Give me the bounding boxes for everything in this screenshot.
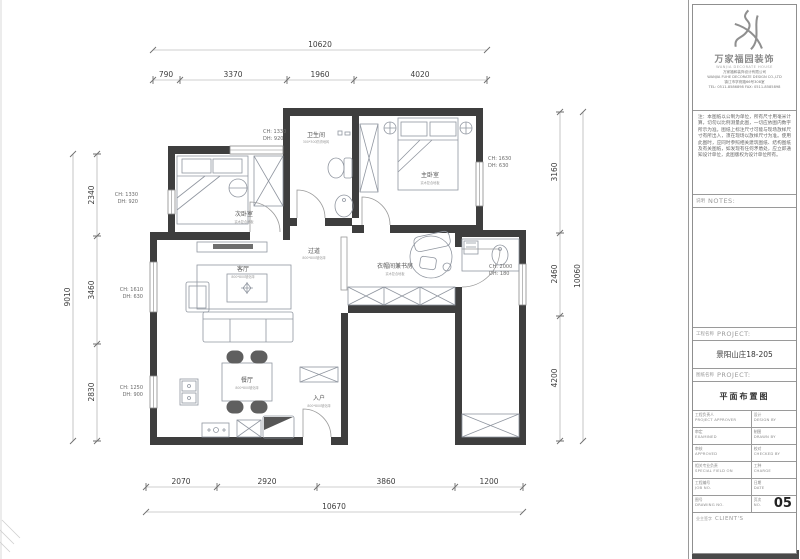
room-corridor: 过道 xyxy=(308,247,320,255)
dim-top-seg2: 1960 xyxy=(310,70,329,79)
titleblock: 万家福园装饰 WANJIA DECORATE HOUSE 万家福和装饰设计有限公… xyxy=(692,4,797,554)
appliance-shade xyxy=(264,417,293,430)
room-corridor-finish: 800*800玻化砖 xyxy=(302,255,326,260)
wintag-utility-ch: CH: 2000 xyxy=(489,264,512,270)
dim-bottom-seg1: 2920 xyxy=(257,477,276,486)
sheet-frame xyxy=(0,0,799,559)
client-signature-box xyxy=(693,525,796,553)
dim-bottom-total: 10670 xyxy=(322,502,346,511)
room-bathroom: 卫生间 xyxy=(307,131,325,139)
table-row: 审核APPROVED 校对CHECKED BY xyxy=(693,445,796,462)
tv xyxy=(213,244,253,249)
window-master-right xyxy=(476,162,483,206)
floor-plan-canvas: 10620 790 3370 1960 4020 10670 2070 2920… xyxy=(0,0,800,559)
room-master-finish: 实木复合地板 xyxy=(420,180,440,185)
room-study-finish: 实木复合地板 xyxy=(385,271,405,276)
notes-empty-box xyxy=(693,208,796,328)
notes-label-en: NOTES: xyxy=(708,197,735,205)
furniture-entry xyxy=(300,367,338,382)
dim-left-seg0: 2340 xyxy=(87,185,96,204)
furniture-bathroom xyxy=(328,131,353,217)
dim-bottom-seg2: 3860 xyxy=(376,477,395,486)
client-label-en: CLIENT'S xyxy=(715,516,743,522)
door-master xyxy=(362,197,390,225)
dim-bottom-seg3: 1200 xyxy=(479,477,498,486)
drawing-label-cn: 图纸名称 xyxy=(696,372,714,378)
drawing-header: 图纸名称 PROJECT: xyxy=(693,369,796,382)
project-label-en: PROJECT: xyxy=(717,330,751,338)
dim-left-total: 9010 xyxy=(63,287,72,306)
room-living: 客厅 xyxy=(237,265,249,273)
notes-label-cn: 说明 xyxy=(696,198,705,204)
project-header: 工程名称 PROJECT: xyxy=(693,328,796,341)
signature-table: 工程负责人PROJECT APPROVER 设计DESIGN BY 审定EXAM… xyxy=(693,411,796,513)
notes-header: 说明 NOTES: xyxy=(693,195,796,208)
corridor-partition xyxy=(341,237,347,290)
window-bedroom-top xyxy=(230,146,283,154)
table-row: 审定EXAMINED 制图DRAWN BY xyxy=(693,428,796,445)
wintag-bedleft-ch: CH: 1330 xyxy=(115,192,138,198)
door-bedroom xyxy=(250,202,280,232)
titleblock-outer-line xyxy=(688,0,689,559)
dim-top-seg3: 4020 xyxy=(410,70,429,79)
wintag-dining-ch: CH: 1250 xyxy=(120,385,143,391)
furniture-living xyxy=(186,242,293,342)
room-dining-finish: 800*800玻化砖 xyxy=(235,385,259,390)
table-row: 相关专业负责SPECIAL FIELD ON 工种CHARGE xyxy=(693,462,796,479)
furniture-master xyxy=(360,118,472,192)
door-bathroom xyxy=(297,190,325,218)
room-living-finish: 800*800玻化砖 xyxy=(231,274,255,279)
drawing-label-en: PROJECT: xyxy=(717,371,751,379)
door-entry xyxy=(303,409,331,437)
client-signature-row: 业主签字 CLIENT'S xyxy=(693,513,796,525)
drawing-sheet: 10620 790 3370 1960 4020 10670 2070 2920… xyxy=(0,0,800,559)
dim-right-total: 10060 xyxy=(573,264,582,288)
wintag-bedleft-dh: DH: 920 xyxy=(118,199,138,205)
dim-left-seg1: 3460 xyxy=(87,280,96,299)
dim-top-seg1: 3370 xyxy=(223,70,242,79)
titleblock-logo-box: 万家福园装饰 WANJIA DECORATE HOUSE 万家福和装饰设计有限公… xyxy=(693,5,796,111)
room-dining: 餐厅 xyxy=(241,376,253,384)
furniture-bedroom2 xyxy=(177,156,283,224)
project-label-cn: 工程名称 xyxy=(696,331,714,337)
client-label-cn: 业主签字 xyxy=(696,516,712,522)
wintag-dining-dh: DH: 900 xyxy=(123,392,143,398)
dim-bottom-seg0: 2070 xyxy=(171,477,190,486)
dim-left-seg2: 2830 xyxy=(87,382,96,401)
room-master: 主卧室 xyxy=(421,171,439,179)
brand-logo-glyph xyxy=(722,7,768,51)
company-line-4: TEL: 0511-8586898 FAX: 0511-8585898 xyxy=(693,85,796,90)
project-name-value: 景阳山庄18-205 xyxy=(693,341,796,369)
table-row: 工程编号JOB NO. 日期DATE xyxy=(693,479,796,496)
furniture-dining xyxy=(180,351,294,438)
wintag-master-dh: DH: 630 xyxy=(488,163,508,169)
wintag-living-ch: CH: 1610 xyxy=(120,287,143,293)
wintag-living-dh: DH: 630 xyxy=(123,294,143,300)
room-bedroom2-finish: 实木复合地板 xyxy=(234,219,254,224)
window-bedroom-left xyxy=(168,190,175,214)
dim-right-seg2: 4200 xyxy=(550,368,559,387)
room-bathroom-finish: 300*300防滑地砖 xyxy=(303,139,330,144)
room-entry: 入户 xyxy=(313,394,325,402)
room-labels: 次卧室 实木复合地板 卫生间 300*300防滑地砖 主卧室 实木复合地板 过道… xyxy=(231,131,440,408)
room-entry-finish: 800*800玻化砖 xyxy=(307,403,331,408)
dim-right-seg0: 3160 xyxy=(550,162,559,181)
page-number: 05 xyxy=(774,496,792,511)
wintag-top-dh: DH: 920 xyxy=(263,136,283,142)
notes-paragraph: 注：本图纸以公制为单位，所有尺寸用毫米计算，切勿以比例测量此图，一切应依图内数字… xyxy=(693,111,796,195)
table-row: 图号DRAWING NO. 页次NO. 05 xyxy=(693,496,796,513)
brand-name: 万家福园装饰 xyxy=(693,55,796,65)
room-study: 衣帽间兼书房 xyxy=(377,262,413,270)
dim-top-total: 10620 xyxy=(308,40,332,49)
drawing-name-value: 平面布置图 xyxy=(693,382,796,411)
wintag-master-ch: CH: 1630 xyxy=(488,156,511,162)
window-utility-right xyxy=(519,264,526,305)
window-dining-left xyxy=(150,376,157,408)
wintag-top-ch: CH: 1330 xyxy=(263,129,286,135)
room-bedroom2: 次卧室 xyxy=(235,210,253,218)
wintag-utility-dh: DH: 180 xyxy=(489,271,509,277)
dim-right-seg1: 2460 xyxy=(550,264,559,283)
window-living-left xyxy=(150,262,157,312)
dim-top-seg0: 790 xyxy=(159,70,174,79)
table-row: 工程负责人PROJECT APPROVER 设计DESIGN BY xyxy=(693,411,796,428)
